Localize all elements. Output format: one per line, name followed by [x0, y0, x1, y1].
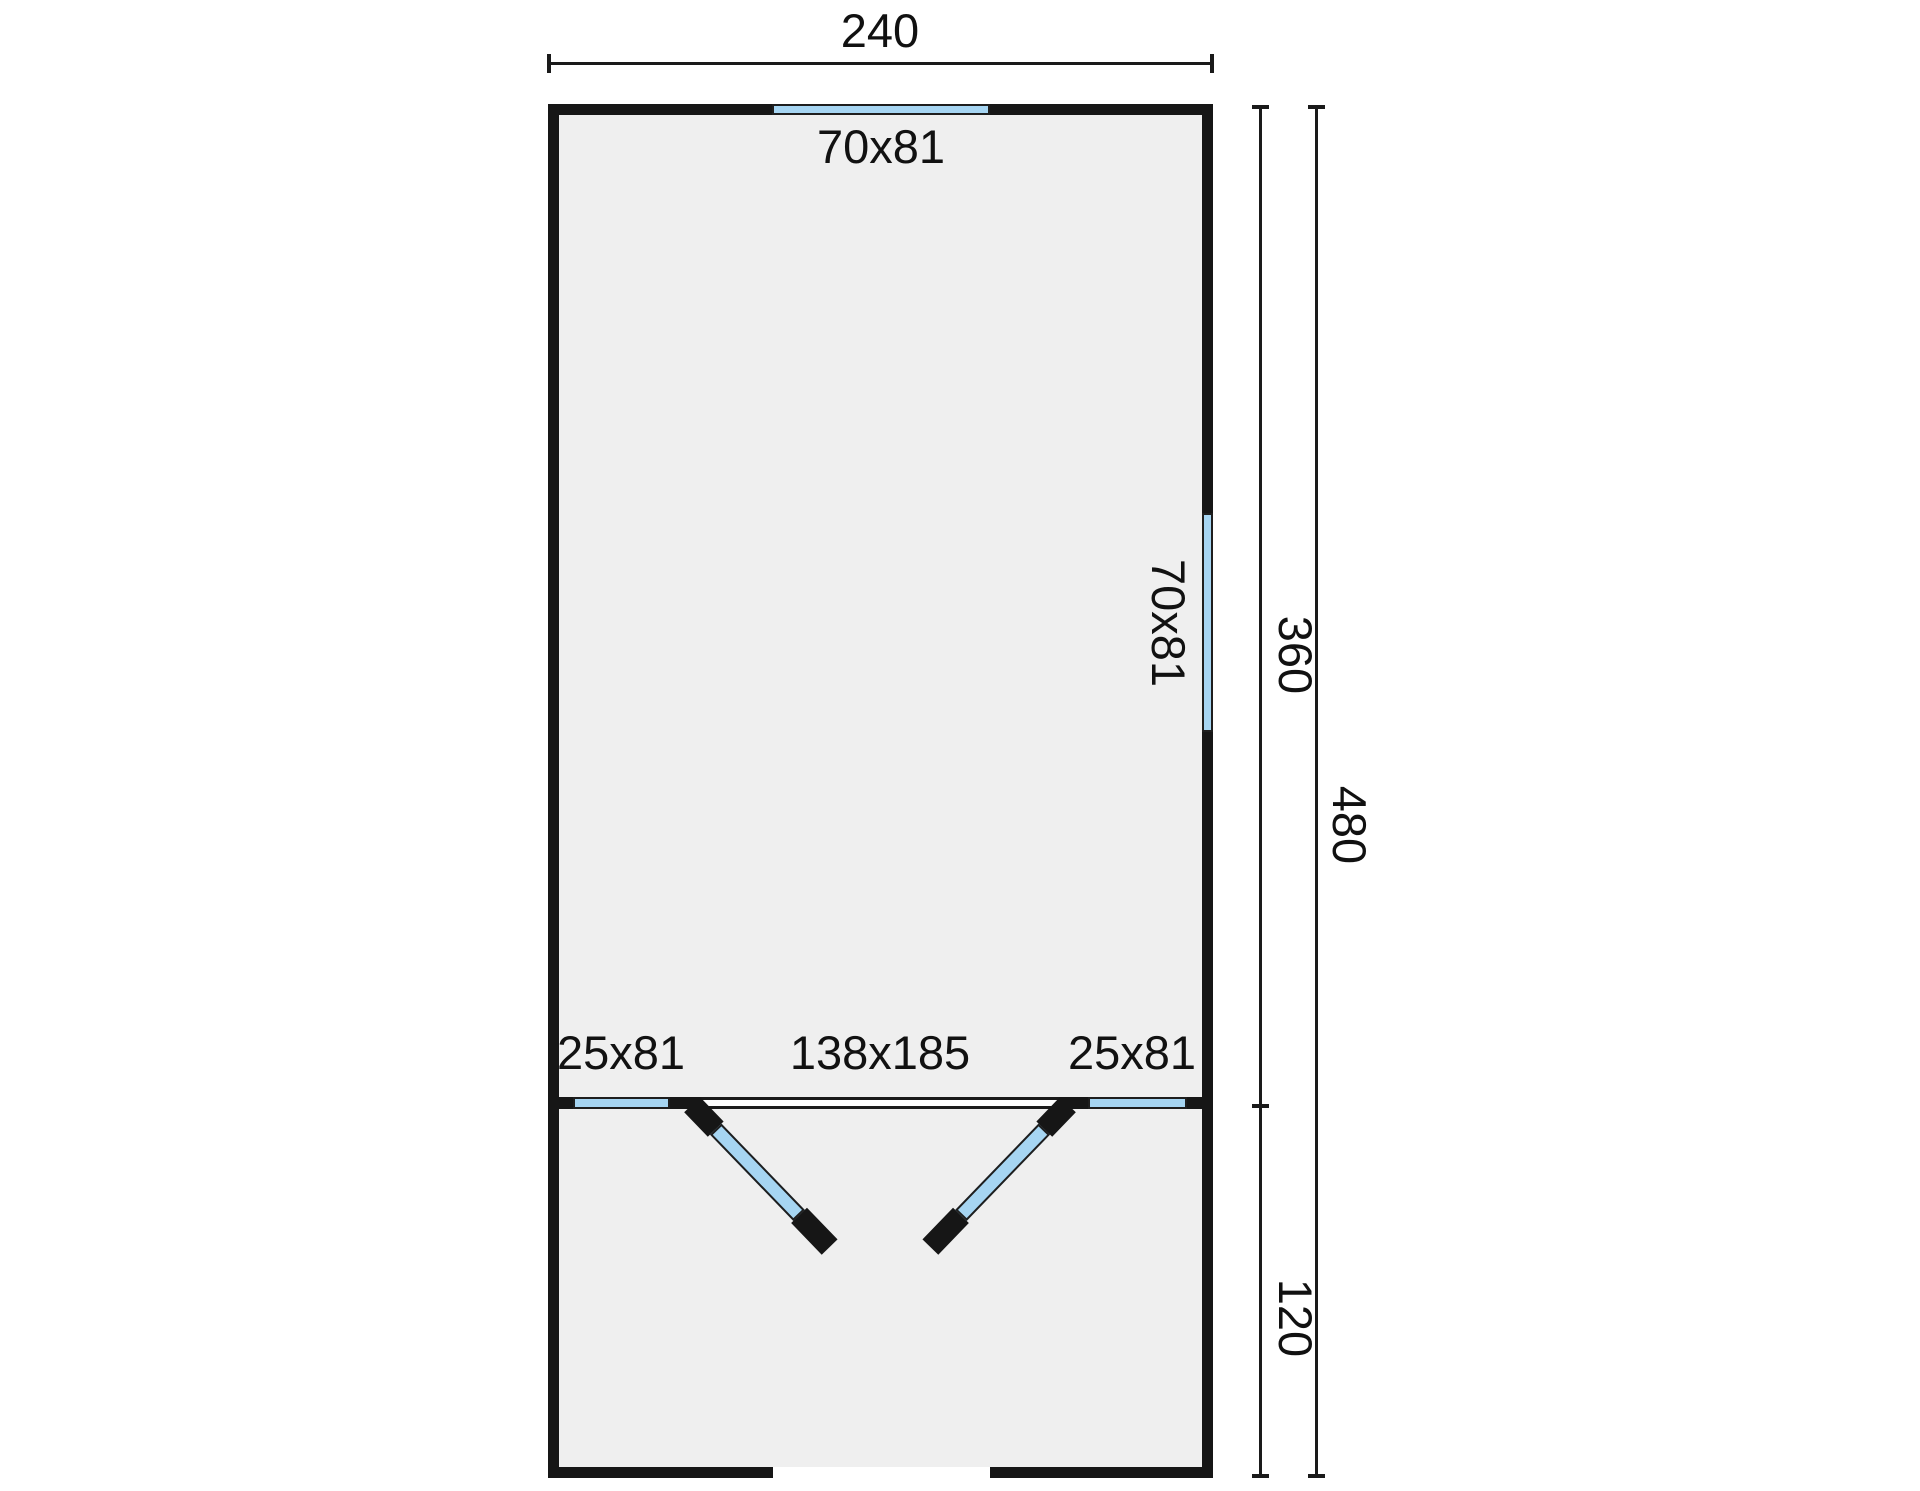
dim-tick-outer-bottom — [1308, 1474, 1325, 1478]
floor-interior — [559, 115, 1202, 1467]
dim-total-depth-label: 480 — [1324, 725, 1374, 925]
wall-bottom-right-segment — [990, 1467, 1213, 1478]
door-frame-line-top — [700, 1097, 1060, 1100]
window-top — [772, 104, 990, 115]
window-top-label: 70x81 — [781, 122, 981, 172]
dim-porch-depth-label: 120 — [1270, 1218, 1320, 1418]
dim-line-outer-right — [1315, 107, 1318, 1478]
window-side — [1202, 513, 1213, 732]
dim-line-inner-right — [1259, 107, 1262, 1478]
dim-tick-top-right — [1210, 54, 1214, 73]
dim-tick-outer-top — [1308, 105, 1325, 109]
window-porch-left — [573, 1097, 670, 1109]
dim-tick-inner-bottom — [1252, 1474, 1269, 1478]
window-side-label: 70x81 — [1143, 523, 1193, 723]
dim-line-top — [549, 62, 1212, 65]
dim-tick-inner-middle — [1252, 1104, 1269, 1108]
window-porch-right — [1088, 1097, 1187, 1109]
dim-width-label: 240 — [780, 6, 980, 56]
divider-wall-segment-4 — [1185, 1097, 1213, 1109]
wall-left — [548, 104, 559, 1478]
door-size-label: 138x185 — [755, 1028, 1005, 1078]
door-frame-line-bottom — [700, 1106, 1060, 1109]
dim-tick-inner-top — [1252, 105, 1269, 109]
dim-tick-top-left — [547, 54, 551, 73]
window-porch-right-label: 25x81 — [1032, 1028, 1232, 1078]
floorplan-canvas: 240 360 120 480 70x81 70x81 25x81 25x81 … — [0, 0, 1920, 1491]
window-porch-left-label: 25x81 — [521, 1028, 721, 1078]
dim-main-depth-label: 360 — [1270, 555, 1320, 755]
wall-bottom-left-segment — [548, 1467, 773, 1478]
wall-right — [1202, 104, 1213, 1478]
divider-wall-segment-1 — [548, 1097, 575, 1109]
